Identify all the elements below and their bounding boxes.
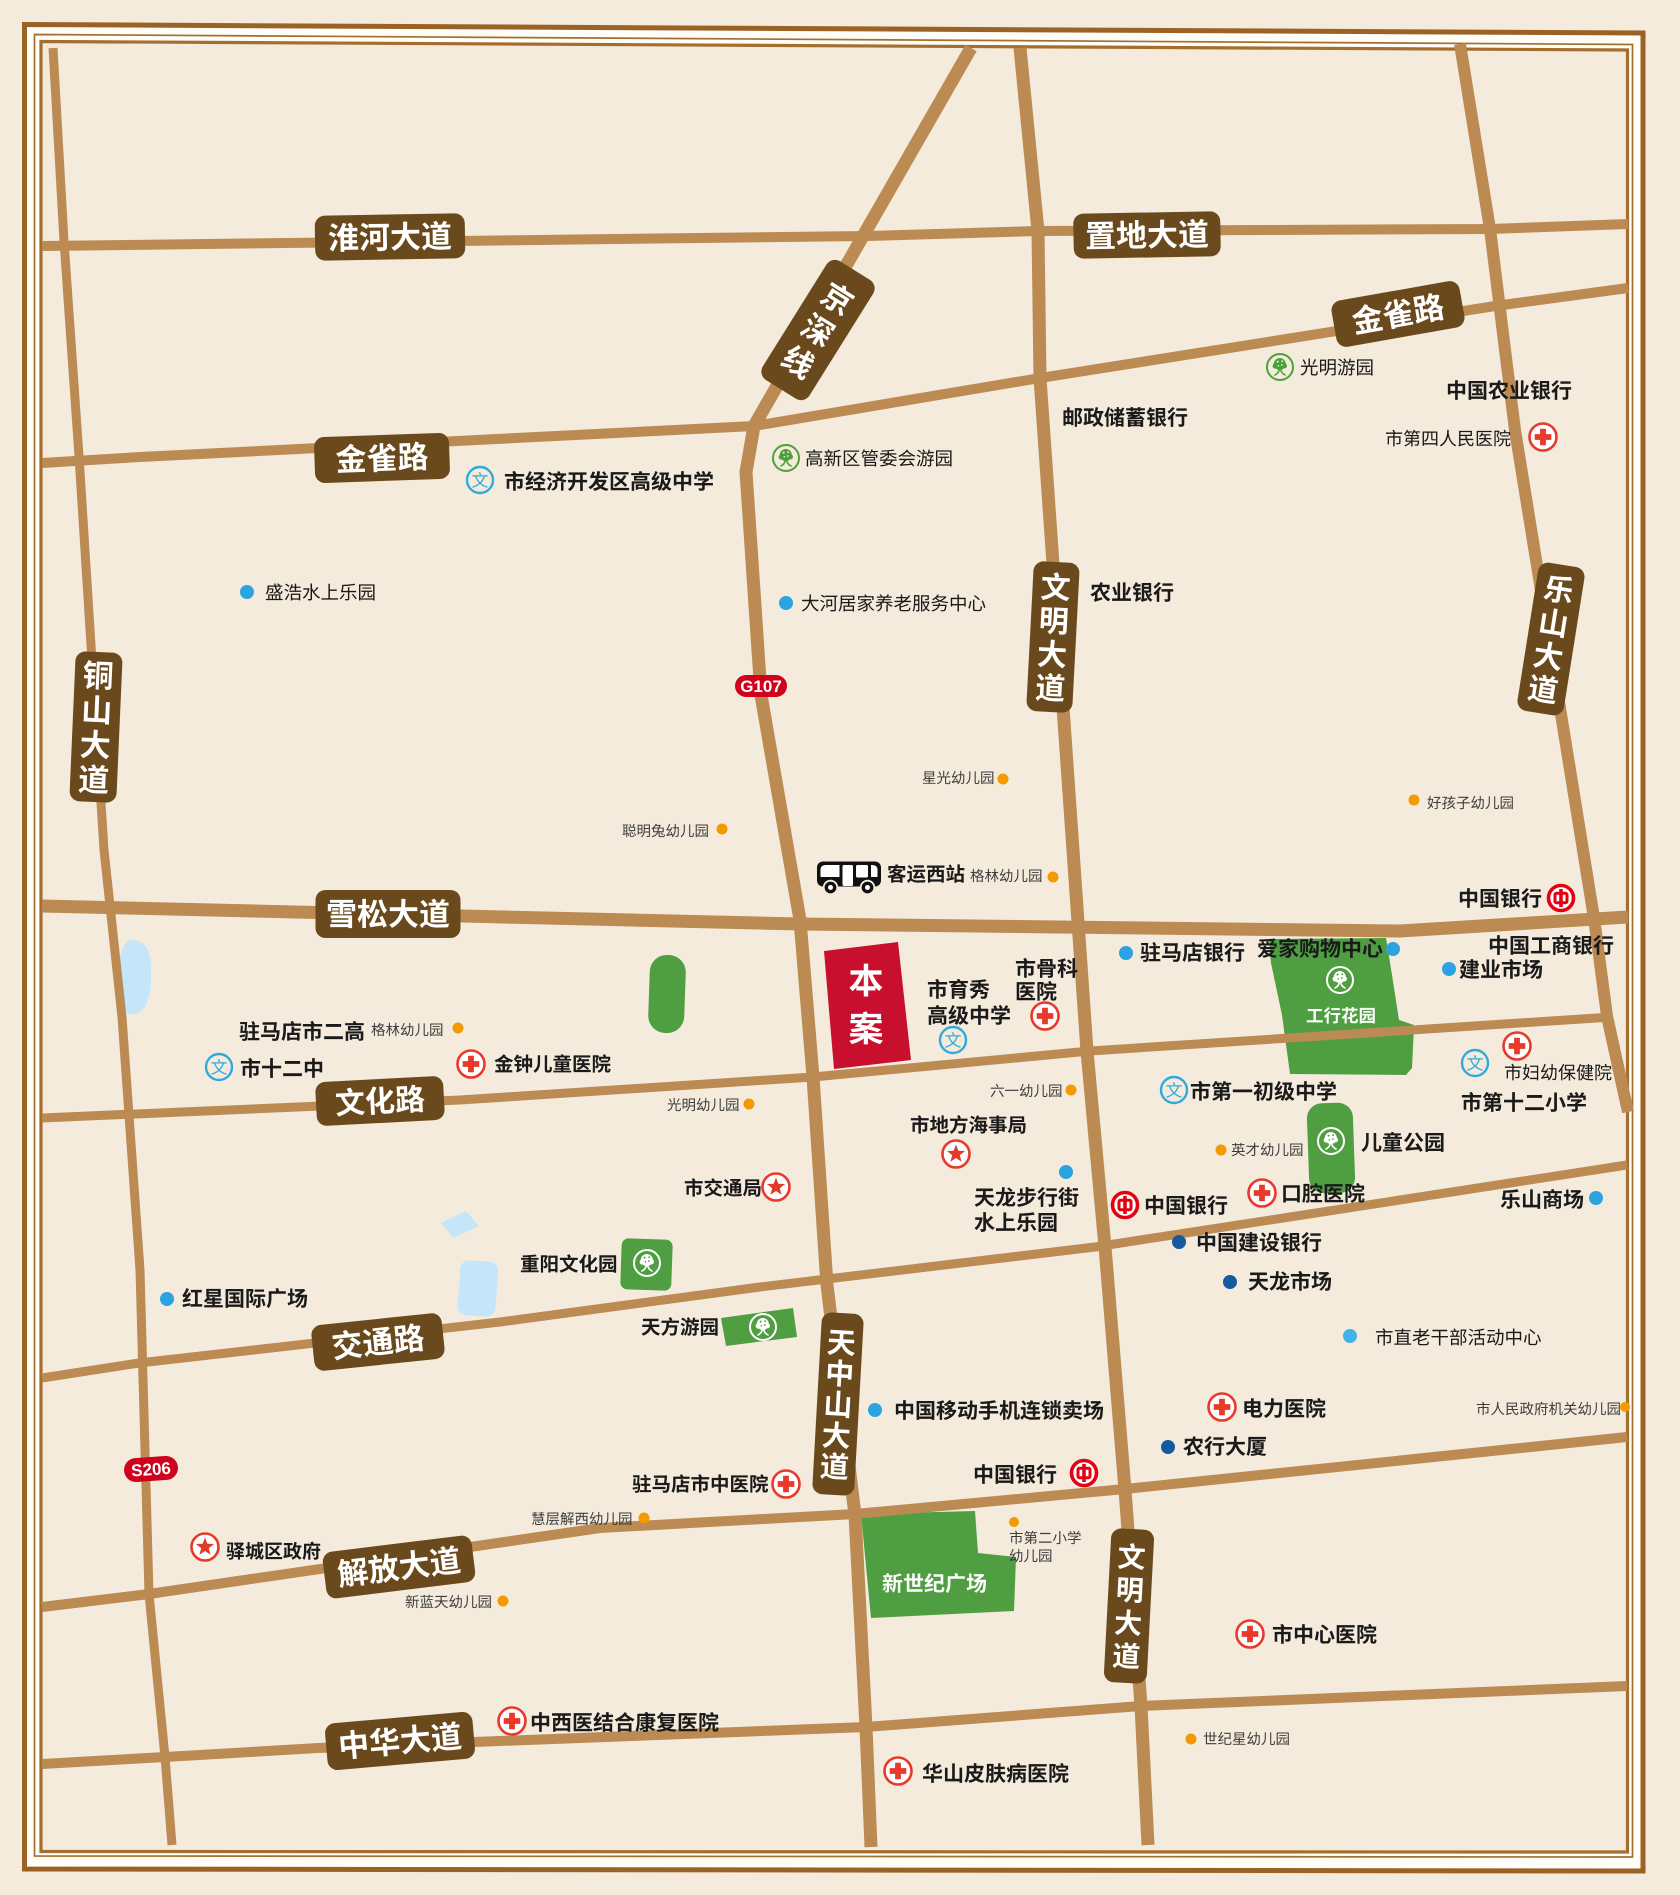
svg-text:G107: G107 — [740, 677, 782, 696]
svg-text:S206: S206 — [131, 1459, 172, 1481]
